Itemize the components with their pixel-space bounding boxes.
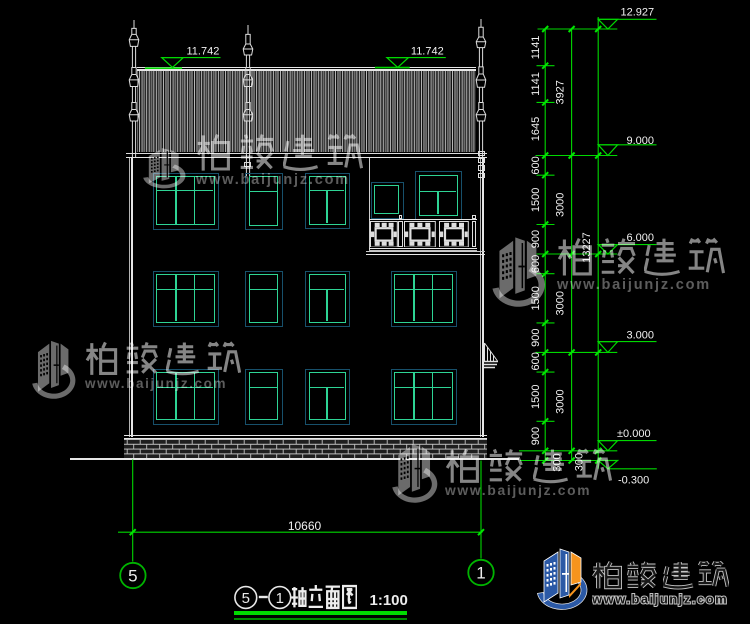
svg-text:5: 5: [128, 567, 137, 586]
svg-text:3.000: 3.000: [627, 330, 655, 342]
svg-text:1:100: 1:100: [370, 592, 408, 609]
svg-text:1141: 1141: [530, 72, 542, 96]
svg-text:-0.300: -0.300: [618, 475, 649, 487]
svg-text:www.baijunjz.com: www.baijunjz.com: [592, 592, 728, 607]
svg-text:1645: 1645: [530, 117, 542, 141]
svg-text:1141: 1141: [530, 36, 542, 60]
svg-text:1500: 1500: [530, 384, 542, 408]
svg-text:3927: 3927: [555, 80, 567, 104]
svg-text:1500: 1500: [530, 188, 542, 212]
svg-text:12.927: 12.927: [621, 7, 655, 19]
svg-text:10660: 10660: [288, 519, 322, 533]
svg-text:11.742: 11.742: [187, 46, 220, 58]
svg-text:3000: 3000: [555, 291, 567, 315]
svg-text:1: 1: [476, 564, 485, 583]
svg-text:5: 5: [242, 590, 250, 607]
svg-text:900: 900: [530, 427, 542, 445]
svg-text:900: 900: [530, 329, 542, 347]
svg-text:1: 1: [276, 590, 284, 607]
svg-text:±0.000: ±0.000: [617, 428, 651, 440]
svg-text:600: 600: [530, 156, 542, 174]
svg-text:11.742: 11.742: [411, 46, 444, 58]
svg-text:3000: 3000: [555, 389, 567, 413]
svg-text:9.000: 9.000: [627, 135, 655, 147]
svg-text:3000: 3000: [555, 193, 567, 217]
svg-text:600: 600: [530, 352, 542, 370]
